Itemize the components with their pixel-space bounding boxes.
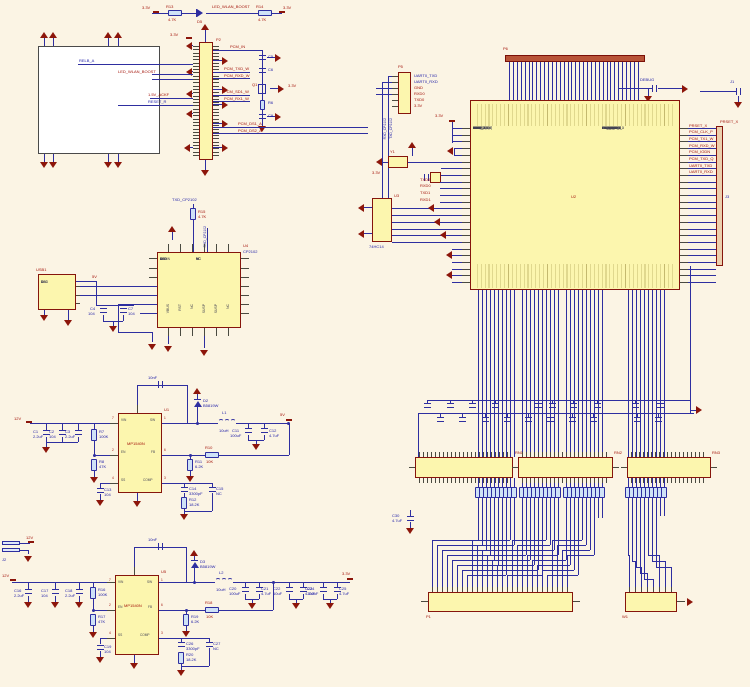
gnd-symbol[interactable] — [24, 602, 32, 608]
net-label[interactable]: 3.3V — [414, 103, 422, 108]
gnd-symbol[interactable] — [222, 144, 228, 152]
gnd-symbol[interactable] — [130, 663, 138, 669]
gnd-symbol[interactable] — [434, 218, 440, 226]
net-label[interactable]: 4.7uF — [269, 433, 279, 438]
net-label[interactable]: PCM_RXD_W — [224, 73, 250, 78]
designator[interactable]: USB1 — [36, 267, 46, 272]
capacitor[interactable] — [652, 85, 657, 92]
module-body[interactable] — [38, 46, 160, 154]
net-label[interactable]: 104 — [49, 434, 56, 439]
resistor-network-body[interactable] — [518, 457, 613, 478]
oscillator-body[interactable] — [388, 156, 408, 168]
net-label[interactable]: 2 — [109, 604, 111, 607]
gnd-symbol[interactable] — [408, 142, 416, 148]
net-label[interactable]: 3.3V — [342, 571, 350, 576]
capacitor[interactable] — [437, 417, 444, 422]
capacitor[interactable] — [158, 381, 163, 388]
net-label[interactable]: RXD0 — [414, 91, 425, 96]
gnd-symbol[interactable] — [109, 326, 117, 332]
net-label[interactable]: COMP — [143, 479, 153, 482]
net-label[interactable]: CP2102 — [243, 249, 257, 254]
designator[interactable]: J3 — [725, 194, 729, 199]
net-label[interactable]: B5819W — [203, 403, 218, 408]
net-label[interactable]: 4 — [112, 477, 114, 480]
net-label[interactable]: RXD1 — [420, 197, 431, 202]
resistor[interactable] — [91, 459, 97, 471]
power-flag[interactable] — [28, 541, 34, 543]
gnd-symbol[interactable] — [75, 602, 83, 608]
capacitor[interactable] — [286, 587, 293, 592]
gnd-symbol[interactable] — [40, 315, 48, 321]
designator[interactable]: U2 — [571, 194, 576, 199]
net-label[interactable]: LED_WLAN_BOOST — [118, 69, 156, 74]
designator[interactable]: P6 — [503, 46, 508, 51]
net-label[interactable]: TXD1 — [420, 190, 430, 195]
capacitor[interactable] — [261, 428, 268, 433]
gnd-symbol[interactable] — [696, 406, 702, 414]
net-label[interactable]: 2.2uF — [33, 434, 43, 439]
net-label[interactable]: PCM_RX1_W — [224, 96, 249, 101]
bottom-connector-p1[interactable] — [428, 592, 573, 612]
net-label[interactable]: 100uF — [307, 591, 318, 596]
net-label[interactable]: 100K — [99, 434, 108, 439]
capacitor[interactable] — [52, 589, 59, 594]
net-label[interactable]: PCM_IN — [230, 44, 245, 49]
capacitor[interactable] — [97, 645, 104, 650]
net-label[interactable]: 5V — [92, 274, 97, 279]
gnd-symbol[interactable] — [275, 113, 281, 121]
net-label[interactable]: TXD_CP2102 — [172, 197, 197, 202]
capacitor[interactable] — [259, 68, 266, 73]
net-label[interactable]: 2.2uF — [14, 593, 24, 598]
gnd-symbol[interactable] — [104, 32, 112, 38]
gnd-symbol[interactable] — [358, 230, 364, 238]
gnd-symbol[interactable] — [428, 204, 434, 212]
reg2-body[interactable] — [115, 575, 159, 655]
capacitor[interactable] — [25, 589, 32, 594]
capacitor[interactable] — [570, 403, 577, 408]
capacitor[interactable] — [76, 589, 83, 594]
resistor[interactable] — [90, 587, 96, 599]
led-diode[interactable] — [197, 9, 203, 17]
gnd-symbol[interactable] — [446, 251, 452, 259]
gnd-symbol[interactable] — [687, 598, 693, 606]
net-label[interactable]: 4.7uF — [339, 591, 349, 596]
gnd-symbol[interactable] — [177, 670, 185, 676]
designator[interactable]: U1 — [164, 407, 169, 412]
net-label[interactable]: 12V — [14, 416, 21, 421]
net-label[interactable]: FB — [148, 606, 152, 609]
capacitor[interactable] — [535, 403, 542, 408]
resistor[interactable] — [168, 10, 182, 16]
net-label[interactable]: 4.7K — [168, 17, 176, 22]
resistor[interactable] — [178, 652, 184, 664]
capacitor[interactable] — [158, 543, 163, 550]
power-flag[interactable] — [286, 419, 292, 421]
net-label[interactable]: PCM_TXD_Q — [689, 156, 713, 161]
net-label[interactable]: UART0_TXD — [689, 163, 712, 168]
designator[interactable]: P1 — [426, 614, 431, 619]
capacitor[interactable] — [259, 55, 266, 60]
power-jack[interactable] — [2, 548, 20, 552]
net-label[interactable]: SS — [118, 634, 122, 637]
net-label[interactable]: R14 — [256, 4, 263, 9]
gnd-symbol[interactable] — [186, 476, 194, 482]
gnd-symbol[interactable] — [201, 170, 209, 176]
bottom-connector-w1[interactable] — [625, 592, 677, 612]
net-label[interactable]: 3.3V — [372, 170, 380, 175]
gnd-symbol[interactable] — [248, 603, 256, 609]
net-label[interactable]: 18.2K — [186, 657, 196, 662]
wire — [392, 208, 462, 209]
net-label[interactable]: C5 — [268, 54, 273, 59]
capacitor[interactable] — [549, 403, 556, 408]
net-label[interactable]: PCM_CLK_P — [689, 129, 713, 134]
net-label[interactable]: LED_WLAN_BOOST — [212, 4, 250, 9]
resistor[interactable] — [511, 487, 517, 498]
inductor-coil[interactable] — [230, 419, 236, 425]
designator[interactable]: U4 — [243, 243, 248, 248]
net-label[interactable]: Q1 — [252, 82, 257, 87]
net-label[interactable]: 47K — [99, 464, 106, 469]
net-label[interactable]: 100uF — [229, 591, 240, 596]
net-label[interactable]: PCM_TXD_W — [224, 66, 249, 71]
gnd-symbol[interactable] — [275, 54, 281, 62]
net-label[interactable]: 3.3V — [142, 5, 150, 10]
pin-name: NC — [196, 255, 201, 264]
gnd-symbol[interactable] — [96, 500, 104, 506]
net-label[interactable]: 4.7K — [198, 214, 206, 219]
net-label[interactable]: 10K — [206, 614, 213, 619]
net-label[interactable]: 74HC14 — [369, 244, 384, 249]
net-label[interactable]: SW — [150, 419, 155, 422]
capacitor[interactable] — [245, 428, 252, 433]
capacitor[interactable] — [736, 88, 741, 95]
net-label[interactable]: 2.2uF — [65, 593, 75, 598]
net-label[interactable]: UART0_RXD — [414, 79, 438, 84]
power-flag[interactable] — [347, 578, 353, 580]
designator[interactable]: RN3 — [712, 450, 720, 455]
designator[interactable]: P5 — [398, 64, 403, 69]
capacitor[interactable] — [482, 417, 489, 422]
gnd-symbol[interactable] — [358, 204, 364, 212]
pin — [631, 478, 632, 483]
resistor[interactable] — [599, 487, 605, 498]
power-flag[interactable] — [449, 120, 455, 122]
power-flag[interactable] — [279, 11, 285, 13]
capacitor[interactable] — [447, 403, 454, 408]
gnd-symbol[interactable] — [114, 32, 122, 38]
gnd-symbol[interactable] — [446, 271, 452, 279]
resistor[interactable] — [661, 487, 667, 498]
net-label[interactable]: 5V — [280, 412, 285, 417]
capacitor[interactable] — [590, 417, 597, 422]
net-label[interactable]: 10uH — [219, 428, 229, 433]
net-label[interactable]: R6 — [268, 100, 273, 105]
net-label[interactable]: 6 — [161, 604, 163, 607]
capacitor[interactable] — [320, 587, 327, 592]
gnd-symbol[interactable] — [133, 501, 141, 507]
designator[interactable]: P2 — [216, 37, 221, 42]
net-label[interactable]: 47K — [98, 619, 105, 624]
gnd-symbol[interactable] — [682, 85, 688, 93]
gnd-symbol[interactable] — [148, 344, 156, 350]
header-body[interactable] — [199, 42, 213, 160]
wire — [688, 282, 716, 283]
resistor[interactable] — [91, 429, 97, 441]
gnd-symbol[interactable] — [734, 102, 742, 108]
net-label[interactable]: PCM_DS2_A — [238, 128, 262, 133]
gnd-symbol[interactable] — [49, 162, 57, 168]
resistor-network-body[interactable] — [627, 457, 711, 478]
net-label[interactable]: L1 — [222, 410, 226, 415]
net-label[interactable]: 7 — [112, 417, 114, 420]
gnd-symbol[interactable] — [406, 528, 414, 534]
capacitor[interactable] — [100, 308, 107, 313]
resistor[interactable] — [181, 497, 187, 509]
gnd-symbol[interactable] — [186, 110, 192, 118]
net-label[interactable]: NC — [216, 491, 222, 496]
net-label[interactable]: VIN — [118, 581, 123, 584]
gnd-symbol[interactable] — [201, 24, 209, 30]
gnd-symbol[interactable] — [51, 602, 59, 608]
capacitor[interactable] — [407, 516, 414, 521]
net-label[interactable]: 3 — [161, 632, 163, 635]
net-label[interactable]: 6.2K — [191, 619, 199, 624]
gnd-symbol[interactable] — [164, 346, 172, 352]
net-label[interactable]: 4.7uF — [261, 591, 271, 596]
net-label[interactable]: 104 — [41, 593, 48, 598]
gnd-symbol[interactable] — [222, 101, 228, 109]
pin — [462, 182, 470, 183]
gnd-symbol[interactable] — [42, 447, 50, 453]
capacitor[interactable] — [657, 403, 664, 408]
net-label[interactable]: 12V — [26, 535, 33, 540]
gnd-symbol[interactable] — [90, 477, 98, 483]
resistor[interactable] — [183, 614, 189, 626]
power-flag[interactable] — [186, 37, 192, 39]
net-label[interactable]: RXD0 — [420, 183, 431, 188]
designator[interactable]: U3 — [394, 193, 399, 198]
net-label[interactable]: TXD0 — [414, 97, 424, 102]
net-label[interactable]: R18 — [205, 600, 212, 605]
net-label[interactable]: C6 — [268, 67, 273, 72]
power-jack[interactable] — [2, 541, 20, 545]
capacitor[interactable] — [547, 417, 554, 422]
capacitor[interactable] — [75, 430, 82, 435]
capacitor[interactable] — [181, 487, 188, 492]
mcu-top-connector[interactable] — [505, 55, 645, 62]
designator[interactable]: RN2 — [614, 450, 622, 455]
resistor-network-body[interactable] — [415, 457, 513, 478]
net-label[interactable]: 100K — [98, 592, 107, 597]
net-label[interactable]: 10nF — [148, 375, 157, 380]
resistor[interactable] — [260, 100, 265, 110]
net-label[interactable]: 18.2K — [189, 502, 199, 507]
net-label[interactable]: FB — [151, 451, 155, 454]
gnd-symbol[interactable] — [440, 231, 446, 239]
net-label[interactable]: 10uH — [216, 587, 226, 592]
resistor[interactable] — [258, 10, 272, 16]
capacitor[interactable] — [424, 403, 431, 408]
net-label[interactable]: 100uF — [230, 433, 241, 438]
net-label[interactable]: C9 — [268, 113, 273, 118]
resistor[interactable] — [205, 607, 219, 613]
gnd-symbol[interactable] — [40, 162, 48, 168]
pin — [241, 268, 249, 269]
net-label[interactable]: 3.3V — [288, 83, 296, 88]
net-label[interactable]: 4.7uF — [392, 518, 402, 523]
net-label[interactable]: 2 — [112, 449, 114, 452]
net-label[interactable]: 3.3V — [170, 32, 178, 37]
net-label[interactable]: GND — [414, 85, 423, 90]
resistor[interactable] — [190, 208, 196, 220]
net-label[interactable]: 3.3V — [283, 5, 291, 10]
net-label[interactable]: 6 — [164, 449, 166, 452]
gnd-symbol[interactable] — [114, 162, 122, 168]
net-label[interactable]: 1.5V_ACKF — [148, 92, 169, 97]
capacitor[interactable] — [242, 587, 249, 592]
designator[interactable]: Y1 — [390, 149, 395, 154]
part-label[interactable]: MP1540N — [127, 441, 145, 446]
net-label[interactable]: 2.2uF — [65, 434, 75, 439]
net-label[interactable]: PCM_IODN — [689, 149, 710, 154]
gnd-symbol[interactable] — [89, 632, 97, 638]
net-label[interactable]: PCM_TX1_W — [689, 136, 713, 141]
net-label[interactable]: 6.2K — [195, 464, 203, 469]
net-label[interactable]: PCM_SD1_W — [224, 89, 249, 94]
part-label[interactable]: MP1540N — [124, 603, 142, 608]
net-label[interactable]: L2 — [219, 570, 223, 575]
resistor[interactable] — [205, 452, 219, 458]
net-label[interactable]: EN — [118, 606, 122, 609]
net-label[interactable]: 10uF — [273, 591, 282, 596]
net-label[interactable]: PRSET_X — [689, 123, 707, 128]
net-label[interactable]: 3.3V — [435, 113, 443, 118]
net-label[interactable]: R10 — [205, 445, 212, 450]
gnd-symbol[interactable] — [186, 90, 192, 98]
net-label[interactable]: 3300pF — [186, 646, 200, 651]
capacitor[interactable] — [97, 488, 104, 493]
net-label[interactable]: RESET_R — [148, 99, 166, 104]
resistor[interactable] — [187, 459, 193, 471]
designator[interactable]: J2 — [2, 557, 6, 562]
capacitor[interactable] — [206, 642, 213, 647]
gnd-symbol[interactable] — [292, 603, 300, 609]
mcu-right-connector[interactable] — [716, 126, 723, 266]
net-label[interactable]: VIN — [121, 419, 126, 422]
gnd-symbol[interactable] — [222, 57, 228, 65]
net-label[interactable]: 104 — [88, 311, 95, 316]
net-label[interactable]: PCM_RXD_W — [689, 143, 715, 148]
net-label[interactable]: COMP — [140, 634, 150, 637]
gnd-symbol[interactable] — [447, 147, 453, 155]
net-label[interactable]: 12V — [2, 573, 9, 578]
gnd-symbol[interactable] — [200, 350, 208, 356]
capacitor[interactable] — [120, 308, 127, 313]
net-label[interactable]: 4 — [109, 632, 111, 635]
power-flag[interactable] — [10, 579, 16, 581]
capacitor[interactable] — [469, 403, 476, 408]
net-label[interactable]: UART0_RXD — [689, 169, 713, 174]
resistor[interactable] — [555, 487, 561, 498]
gnd-symbol[interactable] — [168, 226, 176, 232]
gnd-symbol[interactable] — [180, 514, 188, 520]
net-label[interactable]: 1 — [164, 417, 166, 420]
gnd-symbol[interactable] — [278, 85, 284, 93]
net-label[interactable]: 3 — [164, 477, 166, 480]
capacitor[interactable] — [504, 417, 511, 422]
capacitor[interactable] — [525, 417, 532, 422]
capacitor[interactable] — [209, 487, 216, 492]
capacitor[interactable] — [632, 403, 639, 408]
wire — [618, 62, 619, 100]
gnd-symbol[interactable] — [24, 556, 32, 562]
net-label[interactable]: J1 — [730, 79, 734, 84]
net-label[interactable]: B5819W — [200, 564, 215, 569]
gnd-symbol[interactable] — [182, 631, 190, 637]
inductor-coil[interactable] — [227, 578, 233, 584]
p5-body[interactable] — [398, 72, 411, 114]
capacitor[interactable] — [459, 417, 466, 422]
net-label[interactable]: UART0_TXD — [414, 73, 437, 78]
net-label[interactable]: 104 — [128, 311, 135, 316]
gnd-symbol[interactable] — [96, 657, 104, 663]
diode[interactable] — [191, 562, 199, 568]
diode[interactable] — [194, 401, 202, 407]
net-label[interactable]: 104 — [104, 649, 111, 654]
net-label[interactable]: 3300pF — [189, 491, 203, 496]
capacitor[interactable] — [634, 417, 641, 422]
gnd-symbol[interactable] — [40, 32, 48, 38]
net-label[interactable]: RELB_A — [79, 58, 94, 63]
net-label[interactable]: 4.7K — [258, 17, 266, 22]
resistor[interactable] — [90, 614, 96, 626]
net-label[interactable]: DEBUG — [640, 77, 654, 82]
net-label[interactable]: 10nF — [148, 537, 157, 542]
net-label[interactable]: 104 — [104, 492, 111, 497]
capacitor[interactable] — [655, 417, 662, 422]
net-label[interactable]: NC — [213, 646, 219, 651]
buffer-ic-body[interactable] — [372, 198, 392, 242]
net-label[interactable]: R13 — [166, 4, 173, 9]
net-label[interactable]: TXD_CP2102 — [389, 118, 393, 139]
capacitor[interactable] — [569, 417, 576, 422]
capacitor[interactable] — [594, 403, 601, 408]
net-label[interactable]: PRSET_X — [720, 119, 738, 124]
gnd-symbol[interactable] — [326, 603, 334, 609]
designator[interactable]: W1 — [622, 614, 628, 619]
gnd-symbol[interactable] — [104, 162, 112, 168]
gnd-symbol[interactable] — [252, 444, 260, 450]
gnd-symbol[interactable] — [64, 320, 72, 326]
gnd-symbol[interactable] — [49, 32, 57, 38]
designator[interactable]: U5 — [161, 569, 166, 574]
capacitor[interactable] — [492, 403, 499, 408]
capacitor[interactable] — [259, 114, 266, 119]
gnd-symbol[interactable] — [184, 144, 190, 152]
net-label[interactable]: 10K — [206, 459, 213, 464]
transistor[interactable] — [258, 84, 266, 94]
capacitor[interactable] — [178, 642, 185, 647]
net-label[interactable]: TXD0 — [420, 177, 430, 182]
net-label[interactable]: PCM_DS1_A — [238, 121, 262, 126]
net-label[interactable]: RXD_CP2102 — [383, 118, 387, 139]
gnd-symbol[interactable] — [186, 42, 192, 50]
net-label[interactable]: SS — [121, 479, 125, 482]
net-label[interactable]: EN — [121, 451, 125, 454]
net-label[interactable]: SW — [147, 581, 152, 584]
